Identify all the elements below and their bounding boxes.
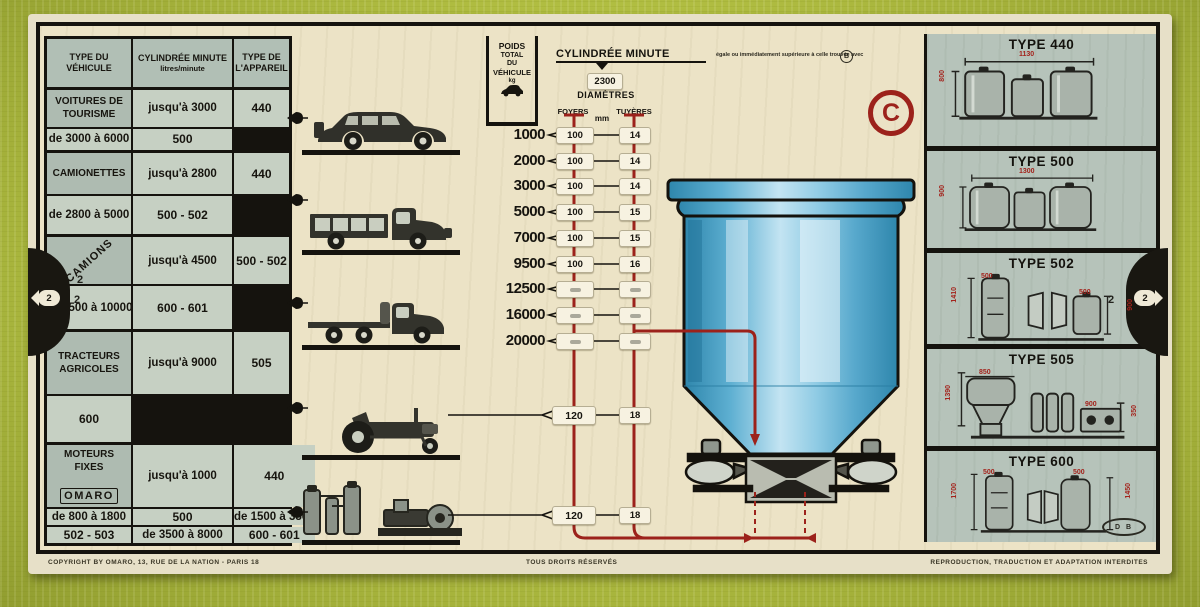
header-type-vehicule: TYPE DU VÉHICULE [47, 39, 131, 87]
b-circle-badge: B [840, 50, 853, 63]
dim-width: 1300 [1019, 168, 1035, 175]
copyright-text: COPYRIGHT BY OMARO, 13, RUE DE LA NATION… [48, 559, 259, 566]
small-car-icon [500, 85, 524, 97]
title-pointer-icon [596, 63, 608, 70]
row-pointer-icon [286, 296, 304, 310]
table-header-row: TYPE DU VÉHICULE CYLINDRÉE MINUTE litres… [47, 39, 289, 87]
type-440-section: TYPE 440 1130 800 [927, 34, 1156, 146]
right-notch-label: 2 [1142, 293, 1147, 304]
row-pointer-icon [286, 401, 304, 415]
vehicle-type-table: TYPE DU VÉHICULE CYLINDRÉE MINUTE litres… [44, 36, 292, 546]
c-ring-logo: C [868, 90, 914, 136]
tuyere-pill: 15 [619, 204, 651, 221]
tuyeres-label: TUYÈRES [610, 107, 658, 116]
cursor-value-box: 2300 [587, 73, 623, 90]
foyer-pill: 120 [552, 406, 596, 425]
dim-width-2: 500 [1079, 289, 1091, 296]
group-moteurs-name: MOTEURS FIXES OMARO [47, 445, 131, 507]
card-face: TYPE DU VÉHICULE CYLINDRÉE MINUTE litres… [36, 22, 1160, 554]
type-440-drawing [947, 54, 1137, 124]
diametres-label: DIAMÈTRES [574, 90, 638, 100]
range-cell: jusqu'à 4500 [133, 237, 232, 284]
ground-bar [302, 250, 460, 255]
type-600-title: TYPE 600 [927, 451, 1156, 469]
foyer-pill-hidden [556, 307, 594, 324]
header-cylindree-label: CYLINDRÉE MINUTE [138, 53, 227, 64]
photo-of-slide-chart: { "card": { "center_logo": "C", "notch_l… [0, 0, 1200, 607]
type-cell: 500 - 502 [133, 196, 232, 234]
foyers-label: FOYERS [550, 107, 596, 116]
poids-value: 1000 [485, 126, 545, 143]
group-camionettes-name: CAMIONETTES [47, 153, 131, 194]
type-cell: 505 [234, 332, 289, 394]
tuyere-pill: 14 [619, 127, 651, 144]
foyer-pill: 100 [556, 230, 594, 247]
poids-l4: VÉHICULE [493, 68, 531, 77]
group-camionettes: CAMIONETTES jusqu'à 2800 440 de 2800 à 5… [47, 153, 289, 234]
tuyere-pill: 16 [619, 256, 651, 273]
dim-height: 1700 [951, 483, 958, 499]
dim-height-2: 350 [1131, 405, 1138, 417]
tuyere-pill: 14 [619, 178, 651, 195]
ground-bar [302, 540, 460, 545]
range-cell: jusqu'à 9000 [133, 332, 232, 394]
poids-value: 12500 [485, 280, 545, 297]
omaro-logo: OMARO [60, 488, 118, 504]
range-cell: de 3500 à 8000 [133, 527, 232, 543]
dim-height: 1410 [951, 287, 958, 303]
slide-chart-card: TYPE DU VÉHICULE CYLINDRÉE MINUTE litres… [28, 14, 1172, 574]
type-cell: 600 - 601 [133, 286, 232, 329]
poids-l2: TOTAL [501, 52, 524, 59]
poids-value: 9500 [485, 255, 545, 272]
dim-width: 500 [983, 469, 995, 476]
range-cell: jusqu'à 3000 [133, 90, 232, 127]
poids-value: 2000 [485, 152, 545, 169]
mm-label: mm [592, 114, 612, 123]
maker-oval-logo: D B [1102, 518, 1146, 536]
type-502-section: TYPE 502 500 1410 500 900 [927, 253, 1156, 344]
row-pointer-icon [286, 111, 304, 125]
foyer-pill-hidden [556, 281, 594, 298]
right-notch-arrow-badge: 2 [1134, 290, 1156, 306]
group-camions: 2 CAMIONS jusqu'à 4500 500 - 502 de 4500… [47, 237, 289, 329]
appliance-types-panel: TYPE 440 1130 800 TYPE 500 [924, 34, 1156, 542]
range-cell: de 3000 à 6000 [47, 129, 131, 150]
poids-l1: POIDS [499, 41, 525, 51]
range-cell: jusqu'à 2800 [133, 153, 232, 194]
ground-bar [302, 150, 460, 155]
header-cylindree: CYLINDRÉE MINUTE litres/minute [133, 39, 232, 87]
type-cell: 500 - 502 [234, 237, 289, 284]
poids-unit: kg [508, 78, 515, 84]
type-505-title: TYPE 505 [927, 349, 1156, 367]
tuyere-pill: 18 [619, 507, 651, 524]
dim-height: 900 [939, 185, 946, 197]
poids-value: 16000 [485, 306, 545, 323]
left-notch-label: 2 [46, 293, 51, 304]
flatbed-truck-illustration [306, 296, 458, 345]
group-moteurs: MOTEURS FIXES OMARO jusqu'à 1000 440 de … [47, 445, 289, 543]
range-cell: jusqu'à 1000 [133, 445, 232, 507]
moteurs-label: MOTEURS FIXES [49, 448, 129, 474]
foyer-pill: 100 [556, 256, 594, 273]
type-cell: 600 [47, 396, 131, 442]
reproduction-text: REPRODUCTION, TRADUCTION ET ADAPTATION I… [930, 559, 1148, 566]
foyer-pill: 120 [552, 506, 596, 525]
ground-bar [302, 345, 460, 350]
type-500-title: TYPE 500 [927, 151, 1156, 169]
foyer-pill: 100 [556, 127, 594, 144]
tractor-illustration [322, 404, 454, 455]
type-cell: 440 [234, 90, 289, 127]
poids-value: 5000 [485, 203, 545, 220]
poids-header-box: POIDS TOTAL DU VÉHICULE kg [486, 36, 538, 126]
type-505-section: TYPE 505 850 1390 900 350 [927, 349, 1156, 446]
tuyere-pill-hidden [619, 281, 651, 298]
poids-value: 7000 [485, 229, 545, 246]
right-notch-number: 2 [1108, 294, 1114, 306]
dim-width: 850 [979, 369, 991, 376]
dim-width: 500 [981, 273, 993, 280]
dim-width: 1130 [1019, 51, 1034, 58]
type-505-drawing [947, 369, 1137, 441]
foyer-pill: 100 [556, 178, 594, 195]
tuyere-pill: 15 [619, 230, 651, 247]
type-cell: 500 [133, 509, 232, 525]
foyer-pill: 100 [556, 204, 594, 221]
cylindree-minute-title: CYLINDRÉE MINUTE [556, 48, 706, 63]
ground-bar [302, 455, 460, 460]
gazogene-hopper-illustration [660, 154, 922, 514]
type-cell: 440 [234, 153, 289, 194]
header-type-appareil: TYPE DE L'APPAREIL [234, 39, 289, 87]
row-pointer-icon [286, 193, 304, 207]
header-cylindree-unit: litres/minute [160, 64, 205, 73]
foyer-pill: 100 [556, 153, 594, 170]
left-notch-number: 2 [74, 294, 80, 306]
rights-text: TOUS DROITS RÉSERVÉS [526, 559, 617, 566]
group-voitures: VOITURES DE TOURISME jusqu'à 3000 440 de… [47, 90, 289, 150]
type-cell: 502 - 503 [47, 527, 131, 543]
tuyere-pill-hidden [619, 307, 651, 324]
dim-height-2: 1450 [1125, 483, 1132, 499]
tuyere-pill: 18 [619, 407, 651, 424]
poids-value: 3000 [485, 177, 545, 194]
dim-height: 800 [939, 70, 946, 82]
dim-width-2: 900 [1085, 401, 1097, 408]
tuyere-pill: 14 [619, 153, 651, 170]
type-500-section: TYPE 500 1300 900 [927, 151, 1156, 248]
stake-truck-illustration [306, 200, 458, 250]
stationary-engine-illustration [298, 476, 466, 538]
poids-value: 20000 [485, 332, 545, 349]
type-500-drawing [947, 171, 1137, 235]
dim-height-2: 900 [1127, 299, 1134, 311]
type-502-drawing [947, 273, 1137, 343]
range-cell: de 2800 à 5000 [47, 196, 131, 234]
group-tracteurs: TRACTEURS AGRICOLES jusqu'à 9000 505 600 [47, 332, 289, 441]
dim-width-2: 500 [1073, 469, 1085, 476]
type-440-title: TYPE 440 [927, 34, 1156, 52]
foyer-pill-hidden [556, 333, 594, 350]
left-notch-arrow-badge: 2 [38, 290, 60, 306]
group-voitures-name: VOITURES DE TOURISME [47, 90, 131, 127]
range-cell: de 800 à 1800 [47, 509, 131, 525]
dim-height: 1390 [945, 385, 952, 401]
camions-label: CAMIONS [62, 236, 115, 286]
tuyere-pill-hidden [619, 333, 651, 350]
sedan-car-illustration [312, 104, 452, 150]
type-cell: 500 [133, 129, 232, 150]
poids-l3: DU [507, 60, 517, 67]
type-502-title: TYPE 502 [927, 253, 1156, 271]
